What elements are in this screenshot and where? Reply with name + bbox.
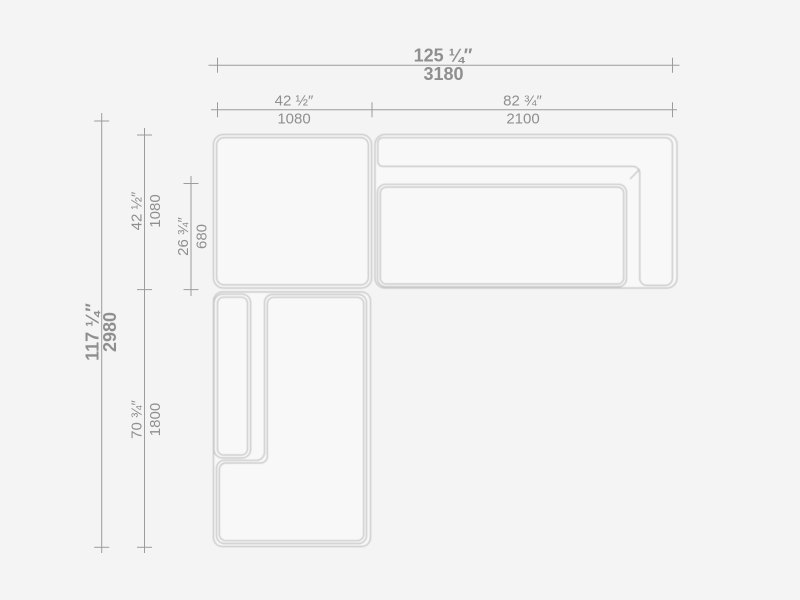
svg-text:680: 680 bbox=[194, 224, 211, 249]
svg-text:1800: 1800 bbox=[147, 403, 164, 436]
svg-text:82 ¾″: 82 ¾″ bbox=[503, 93, 542, 110]
svg-text:42 ½″: 42 ½″ bbox=[275, 93, 314, 110]
svg-text:42 ½″: 42 ½″ bbox=[129, 191, 146, 230]
svg-text:2100: 2100 bbox=[506, 111, 539, 128]
svg-text:26 ¾″: 26 ¾″ bbox=[175, 216, 192, 255]
svg-text:2980: 2980 bbox=[100, 312, 120, 352]
svg-text:1080: 1080 bbox=[147, 194, 164, 227]
svg-text:70 ¾″: 70 ¾″ bbox=[129, 399, 146, 438]
svg-text:1080: 1080 bbox=[277, 111, 310, 128]
svg-text:125 ¼″: 125 ¼″ bbox=[414, 46, 473, 66]
svg-text:3180: 3180 bbox=[423, 64, 463, 84]
